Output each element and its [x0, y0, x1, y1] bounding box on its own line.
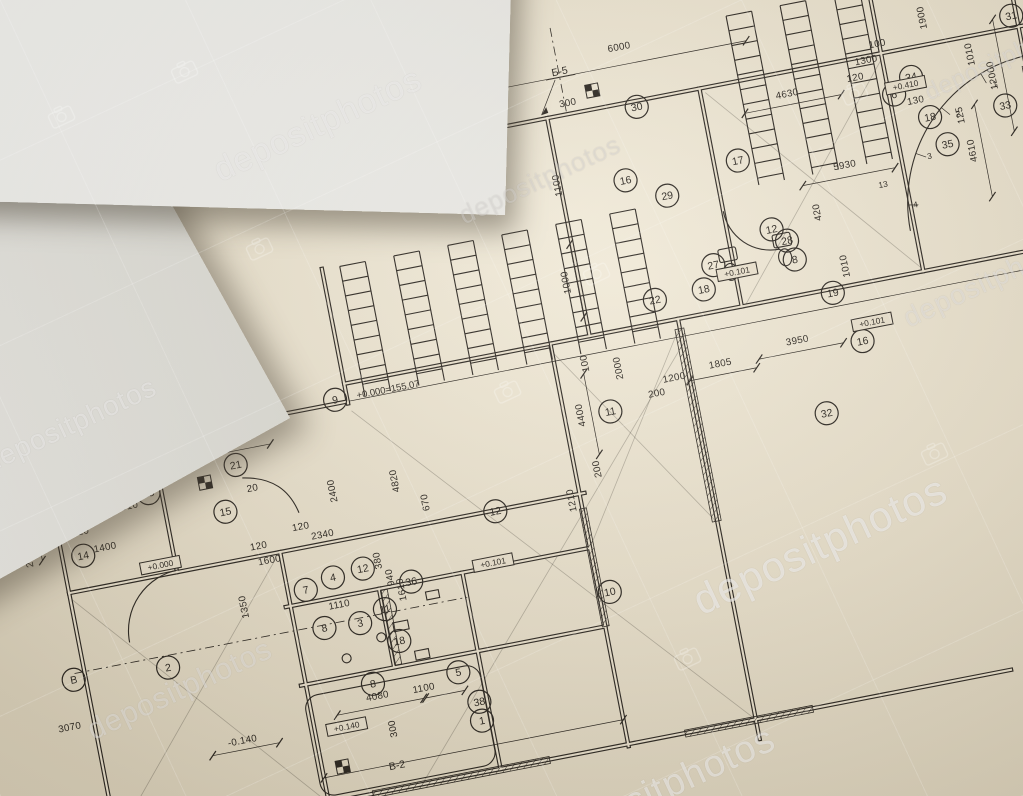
dimension-label: 100	[868, 37, 887, 51]
dimension-label: 1100	[412, 681, 436, 696]
room-number: 14	[76, 549, 90, 563]
dimension-label: 4610	[965, 138, 980, 163]
room-number: 11	[604, 405, 617, 419]
room-number: 12	[489, 505, 503, 519]
stair-step-label: 4	[912, 199, 919, 210]
dimension-label: 300	[558, 96, 577, 110]
room-number: 30	[630, 100, 644, 114]
dimension-label: 200	[591, 459, 605, 478]
room-number: 8	[369, 678, 377, 691]
axis-label-bottom: В-2	[388, 758, 406, 773]
room-number: 18	[923, 111, 937, 125]
room-number: 33	[998, 99, 1012, 113]
dimension-label: 1300	[854, 53, 879, 68]
room-number: 35	[941, 138, 955, 152]
stair-step-label: 13	[878, 178, 889, 190]
dimension-label: 3070	[57, 720, 82, 735]
room-number: 18	[697, 283, 711, 297]
room-number: 16	[619, 174, 633, 188]
room-number: 19	[826, 286, 840, 300]
room-number: 21	[229, 459, 243, 473]
dimension-label: 1805	[708, 356, 733, 371]
room-number: 22	[648, 293, 662, 307]
dimension-label: 1900	[915, 5, 930, 30]
hatched-wall-segment	[685, 705, 814, 737]
dimension-label: 120	[249, 539, 268, 553]
room-number: 28	[780, 234, 794, 248]
room-number: 5	[454, 666, 462, 679]
dimension-label: 1100	[550, 173, 565, 197]
dimension-label: -0.140	[227, 733, 258, 749]
dimension-label: 1350	[237, 594, 252, 619]
dimension-label: 4400	[573, 403, 588, 428]
dimension-label: 2400	[325, 478, 340, 503]
room-number: 9	[331, 394, 339, 407]
room-number: 15	[219, 505, 233, 519]
room-number: 2	[164, 662, 172, 675]
dimension-label: 1010	[838, 253, 853, 278]
drafting-scene: 3031331617292232346183527281281819169217…	[0, 0, 1023, 796]
dimension-label: 4820	[388, 468, 403, 493]
dimension-label: 1010	[963, 42, 978, 67]
room-number: 31	[1004, 9, 1018, 23]
dimension-label: 120	[846, 71, 865, 85]
dimension-label: 670	[419, 493, 433, 512]
dimension-label: 1000	[559, 270, 574, 295]
dimension-label: 2000	[611, 356, 626, 381]
axis-label-top: Б-5	[551, 64, 569, 79]
dimension-label: 420	[811, 203, 825, 222]
dimension-label: 4630	[775, 87, 800, 102]
room-number: 29	[660, 189, 674, 203]
dimension-label: 120	[291, 520, 310, 534]
dimension-label: 20	[246, 482, 260, 495]
room-number: 16	[856, 335, 870, 349]
room-number: 10	[603, 585, 617, 599]
dimension-label: 4080	[365, 689, 390, 704]
dimension-label: 6000	[607, 40, 632, 55]
dimension-label: 1400	[93, 540, 118, 555]
room-number: 17	[731, 154, 745, 168]
dimension-label: 200	[647, 387, 666, 401]
room-number: 8	[791, 254, 799, 267]
dimension-label: 3950	[785, 333, 810, 348]
room-number: 32	[820, 407, 834, 421]
plumbing-fixtures	[278, 232, 856, 674]
room-number: 4	[329, 572, 337, 585]
dimension-label: 100	[578, 354, 592, 373]
room-number: 38	[473, 695, 487, 709]
room-number: 1	[478, 715, 486, 728]
blank-paper-sheet-top	[0, 0, 525, 215]
room-number: 8	[321, 622, 329, 635]
room-number: В	[69, 674, 78, 687]
dimension-label: 130	[906, 94, 925, 108]
room-number: 12	[765, 223, 779, 237]
room-number: 3	[356, 617, 364, 630]
room-number: 7	[302, 584, 310, 597]
room-number: 18	[393, 635, 407, 649]
hatched-wall-segment	[579, 508, 609, 627]
room-number: 12	[356, 562, 370, 576]
dimension-label: 380	[371, 551, 385, 570]
hatched-wall-segment	[675, 328, 721, 522]
dimension-label: 300	[386, 719, 400, 738]
stair-step-label: 3	[926, 150, 933, 161]
